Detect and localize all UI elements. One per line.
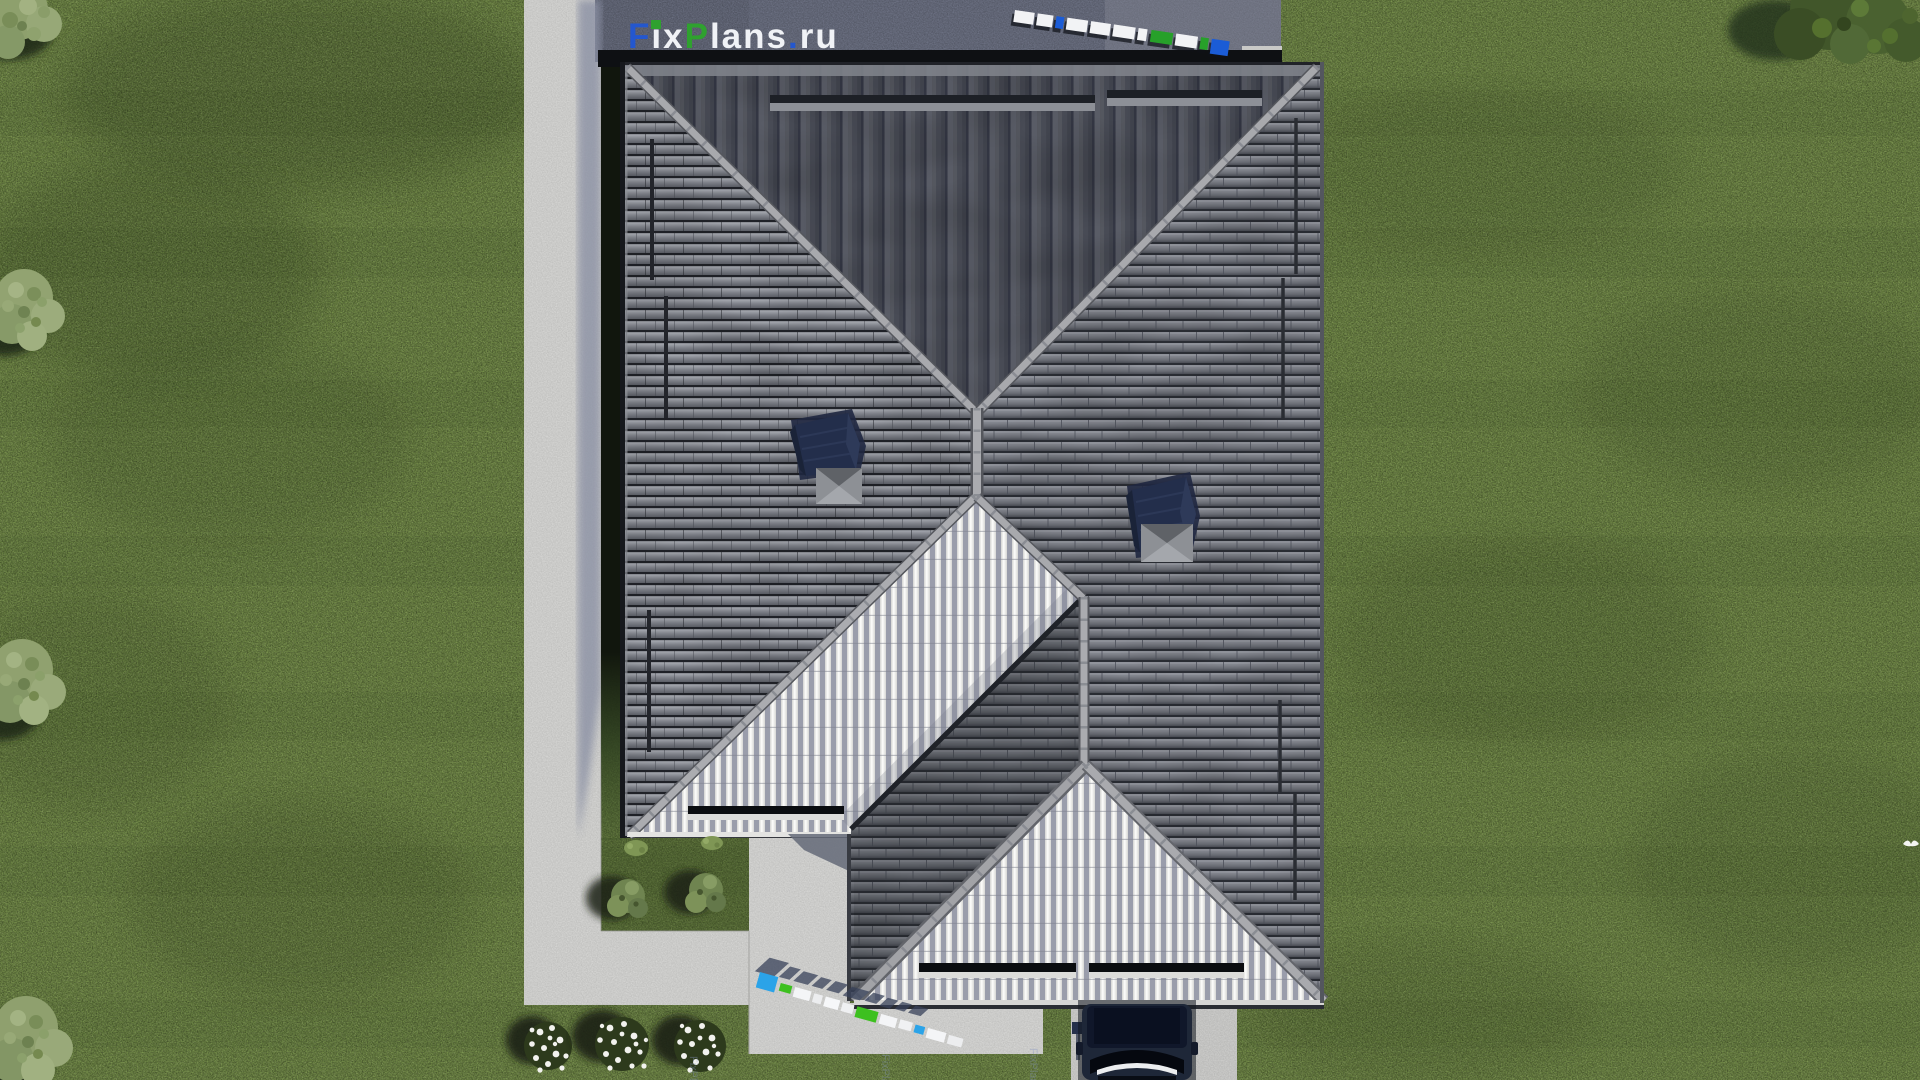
svg-text:FixPlans.ru: FixPlans.ru: [1027, 1048, 1039, 1080]
svg-text:FixPlans.ru: FixPlans.ru: [879, 1054, 891, 1080]
svg-text:FixPlans.ru: FixPlans.ru: [687, 1056, 699, 1080]
